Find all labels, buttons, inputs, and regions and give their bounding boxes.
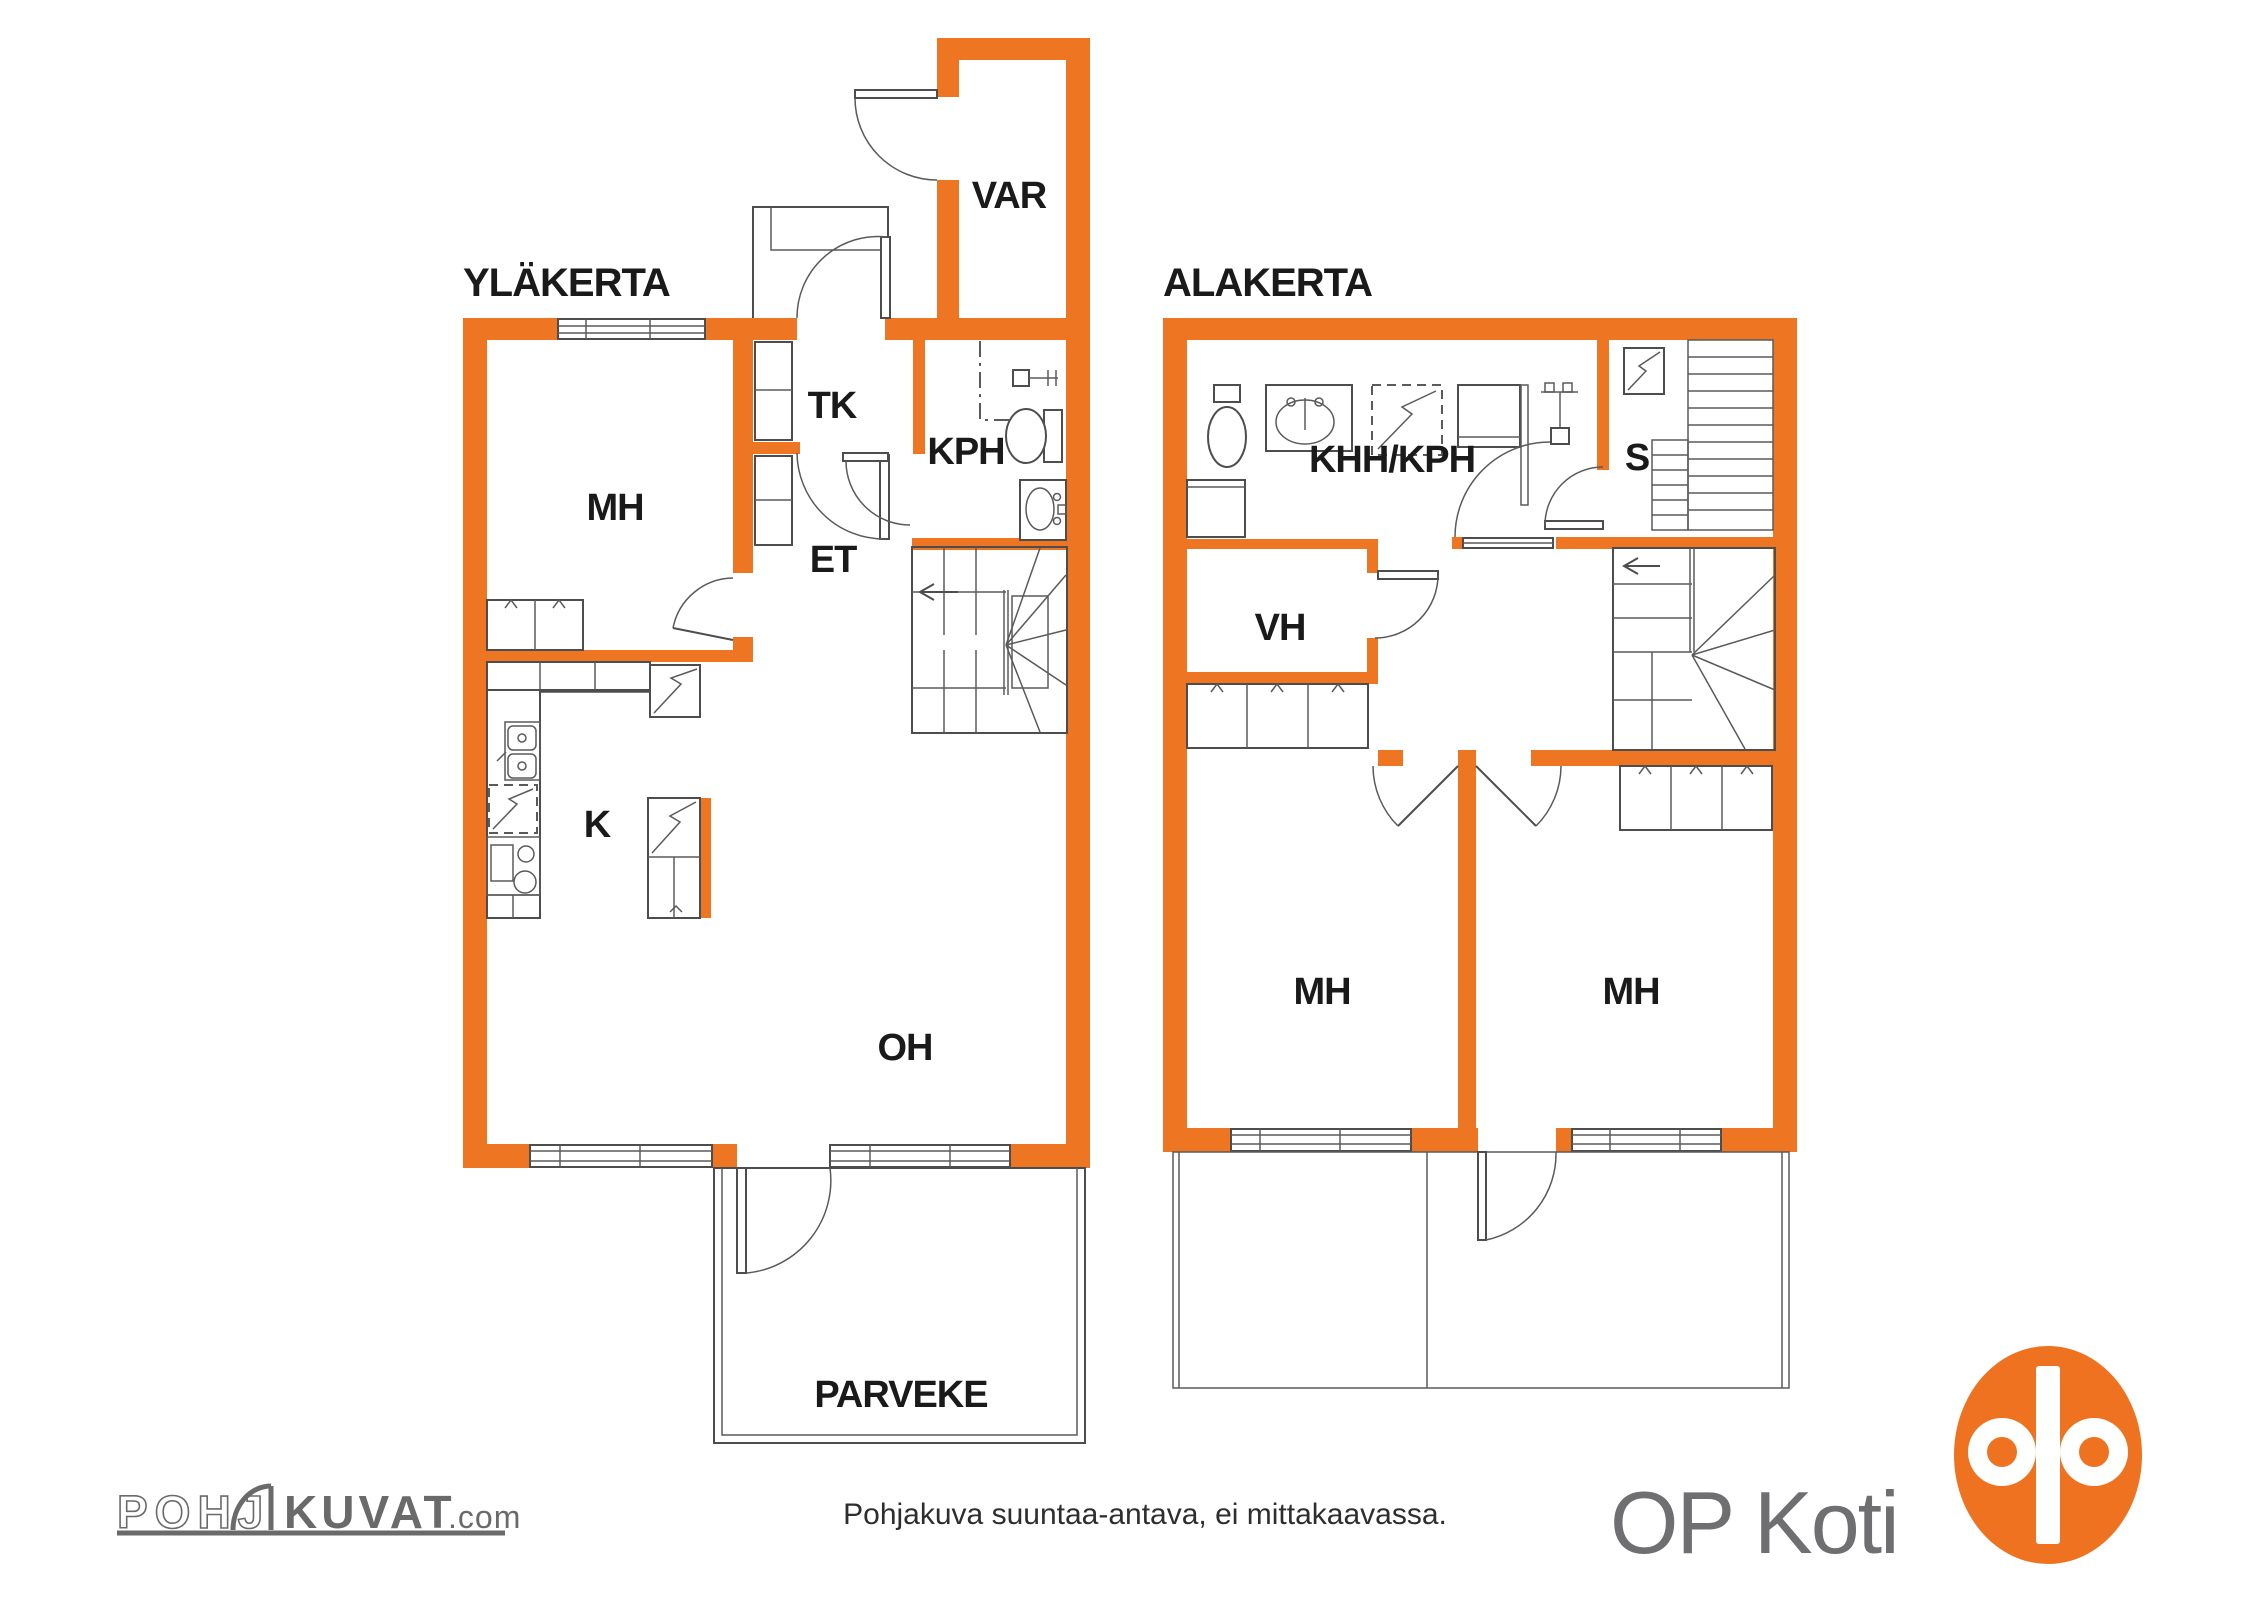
floorplan-canvas: YLÄKERTA VAR TK KPH MH ET K OH PARVEKE [0,0,2262,1600]
stairs-direction-arrow-alakerta [1624,558,1660,574]
mh1-wardrobe [1187,684,1368,748]
entrance-porch [753,207,890,318]
floor-title-alakerta: ALAKERTA [1163,261,1372,305]
room-label-khh-kph: KHH/KPH [1309,439,1475,481]
window-bottom-mh1 [1231,1129,1411,1151]
room-label-s: S [1625,437,1649,479]
pohjakuvat-logo-solid-text: KUVAT [284,1486,456,1538]
stairs-icon-alakerta [1613,548,1775,750]
mh2-wardrobe [1620,766,1772,830]
footer: POHJ KUVAT .com Pohjakuva suuntaa-antava… [117,1346,2142,1572]
hall-doors [797,453,910,539]
room-label-k: K [584,804,612,846]
room-label-mh1: MH [1293,971,1350,1013]
room-label-parveke: PARVEKE [814,1374,987,1416]
var-door [855,90,937,180]
room-label-var: VAR [972,175,1047,217]
balcony-door [737,1168,831,1273]
floorplan-ylakerta: YLÄKERTA VAR TK KPH MH ET K OH PARVEKE [463,38,1090,1443]
room-label-et: ET [810,539,857,581]
room-label-mh-ylakerta: MH [586,487,643,529]
floorplan-alakerta: ALAKERTA KHH/KPH S VH MH MH [1163,261,1797,1388]
room-label-oh: OH [878,1027,933,1069]
kitchen-island [648,798,700,918]
khh-side-cabinet [1187,480,1245,537]
pohjakuvat-logo-suffix: .com [448,1499,521,1535]
window-bottom-right [830,1145,1010,1167]
stairs-icon-ylakerta [912,547,1067,733]
pohjakuvat-logo: POHJ KUVAT .com [117,1486,521,1538]
front-door-arc [797,236,887,318]
op-koti-wordmark: OP Koti [1610,1473,1898,1572]
window-top [558,319,705,339]
sauna-door [1545,467,1603,529]
room-label-tk: TK [808,385,858,427]
toilet-icon [1006,409,1062,463]
floorplan-page: YLÄKERTA VAR TK KPH MH ET K OH PARVEKE [0,0,2262,1600]
window-bottom-left [530,1145,712,1167]
disclaimer-text: Pohjakuva suuntaa-antava, ei mittakaavas… [843,1498,1447,1531]
floor-title-ylakerta: YLÄKERTA [463,261,670,305]
shower-icon [1013,370,1058,386]
room-label-mh2: MH [1602,971,1659,1013]
mh-door [673,578,733,640]
fridge-icon [650,665,700,717]
room-label-kph: KPH [927,431,1004,473]
kitchen-fixtures [487,662,700,918]
sink-icon [1020,480,1066,540]
sauna-heater-icon [1624,348,1664,394]
mh-wardrobe [487,600,583,650]
front-door-leaf [881,237,890,318]
room-label-vh: VH [1255,607,1306,649]
vh-door [1375,571,1438,638]
shower-mixer-icon [1541,383,1578,444]
window-bottom-mh2 [1572,1129,1721,1151]
op-logo-icon [1954,1346,2142,1564]
toilet-icon-alakerta [1208,385,1246,467]
terrace-door [1478,1152,1556,1240]
sauna-benches [1652,340,1773,530]
stairs-direction-arrow [920,584,958,600]
sauna-fixtures [1545,340,1773,530]
